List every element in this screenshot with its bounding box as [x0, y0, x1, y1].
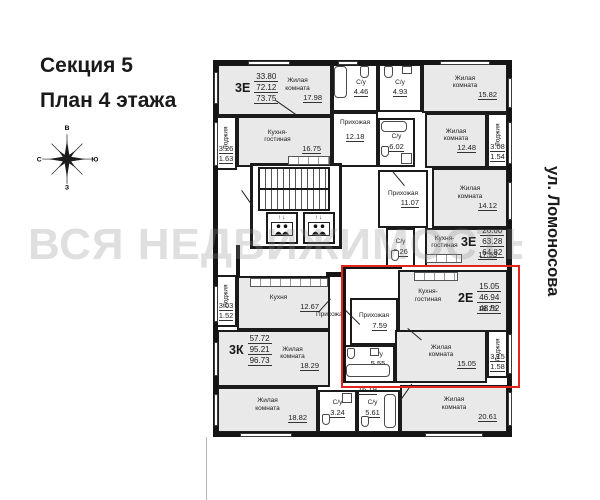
room-area: 3.26: [219, 144, 234, 154]
section-boundary-line: [206, 437, 207, 500]
room-area: 4.46: [354, 87, 369, 97]
room-label: С/у: [356, 79, 366, 86]
window: [508, 182, 512, 220]
room-label: Жилая комната: [280, 77, 316, 92]
apartment-label-3k[interactable]: 3К 57.72 95.21 96.73: [229, 334, 272, 366]
room-area: 11.07: [401, 198, 419, 208]
window: [338, 61, 358, 65]
room-loggia-3-26: Лоджия 3.26 1.63: [215, 116, 237, 170]
room-area: 3.03: [219, 301, 234, 311]
room-area: 20.61: [478, 412, 497, 422]
window: [214, 72, 218, 104]
kitchen-counter-icon: [288, 156, 330, 165]
room-loggia-3-03: Лоджия 3.03 1.52: [215, 275, 237, 327]
room-label: С/у: [392, 133, 402, 140]
room-label: Жилая комната: [275, 346, 311, 361]
room-loggia-3-08: Лоджия 3.08 1.54: [487, 113, 508, 168]
room-area: 12.18: [346, 132, 365, 142]
window: [508, 122, 512, 164]
toilet-icon: [361, 416, 369, 427]
room-label: Кухня-гостиная: [260, 129, 296, 144]
sink-icon: [402, 66, 412, 74]
apartment-living-area: 57.72: [248, 334, 272, 344]
room-living-20-61: Жилая комната 20.61: [400, 385, 508, 433]
apartment-label-3e-left[interactable]: 3Е 33.80 72.12 73.75: [235, 72, 278, 104]
room-living-12-48: Жилая комната 12.48: [425, 113, 487, 168]
compass-left-label: С: [37, 157, 42, 164]
room-area: 18.29: [300, 361, 319, 371]
room-living-15-82: Жилая комната 15.82: [422, 62, 508, 113]
toilet-icon: [381, 146, 389, 157]
room-area: 3.24: [330, 408, 345, 418]
room-area-coef: 1.63: [219, 154, 234, 164]
room-area: 15.82: [478, 90, 497, 100]
compass-top-label: В: [65, 125, 70, 132]
window: [425, 433, 483, 437]
apartment-type: 3Е: [235, 81, 250, 95]
room-area: 12.48: [457, 143, 476, 153]
kitchen-counter-icon: [250, 278, 328, 287]
room-label: Жилая комната: [436, 396, 472, 411]
window: [248, 61, 290, 65]
bathtub-icon: [381, 121, 407, 132]
room-area: 17.98: [303, 93, 322, 103]
room-label: Жилая комната: [452, 185, 488, 200]
staircase-divider: [258, 188, 330, 190]
floor-plan-page: Секция 5 План 4 этажа В Ю З С ВСЯ НЕДВИЖ…: [0, 0, 600, 500]
apartment-living-area: 33.80: [254, 72, 278, 82]
compass-rose: В Ю З С: [36, 124, 98, 190]
toilet-icon: [384, 66, 393, 78]
bathtub-icon: [384, 394, 396, 428]
room-area-coef: 1.54: [490, 152, 505, 162]
room-area: 18.82: [288, 413, 307, 423]
room-area: 14.12: [478, 201, 497, 211]
bathtub-icon: [334, 66, 347, 98]
room-hall-12-18: Прихожая 12.18: [332, 112, 378, 167]
compass-bottom-label: З: [65, 184, 69, 190]
room-area: 6.02: [389, 142, 404, 152]
room-label: С/у: [368, 399, 378, 406]
window: [508, 392, 512, 426]
window: [508, 78, 512, 108]
room-label: Жилая комната: [447, 75, 483, 90]
room-area: 3.08: [490, 142, 505, 152]
apartment-type: 3К: [229, 343, 244, 357]
room-label: Кухня: [270, 294, 287, 301]
window: [240, 433, 292, 437]
compass-right-label: Ю: [91, 157, 98, 164]
washer-icon: [401, 153, 412, 164]
apartment-area: 72.12: [254, 83, 278, 93]
apartment-total-area: 73.75: [254, 94, 278, 104]
room-label: С/у: [333, 399, 343, 406]
room-label: Прихожая: [388, 190, 418, 197]
room-living-18-82: Жилая комната 18.82: [217, 387, 318, 433]
window: [440, 61, 490, 65]
room-area: 16.75: [302, 144, 321, 154]
window: [214, 286, 218, 322]
toilet-icon: [360, 66, 369, 78]
room-label: С/у: [395, 79, 405, 86]
washer-icon: [342, 393, 352, 403]
window: [214, 342, 218, 376]
section-title: Секция 5: [40, 54, 133, 78]
window: [214, 394, 218, 426]
toilet-icon: [322, 414, 330, 425]
room-area-coef: 1.52: [219, 311, 234, 321]
watermark: ВСЯ НЕДВИЖИМОСТЬ: [28, 220, 522, 268]
street-label: ул. Ломоносова: [536, 166, 562, 356]
room-label: Прихожая: [340, 119, 370, 126]
room-living-14-12: Жилая комната 14.12: [432, 168, 508, 228]
room-area: 4.93: [393, 87, 408, 97]
room-label: Жилая комната: [250, 397, 286, 412]
apartment-total-area: 96.73: [248, 356, 272, 366]
window: [214, 122, 218, 166]
floor-title: План 4 этажа: [40, 89, 176, 113]
room-label: Жилая комната: [438, 128, 474, 143]
apartment-area: 95.21: [248, 345, 272, 355]
selected-apartment-highlight[interactable]: [341, 265, 520, 388]
